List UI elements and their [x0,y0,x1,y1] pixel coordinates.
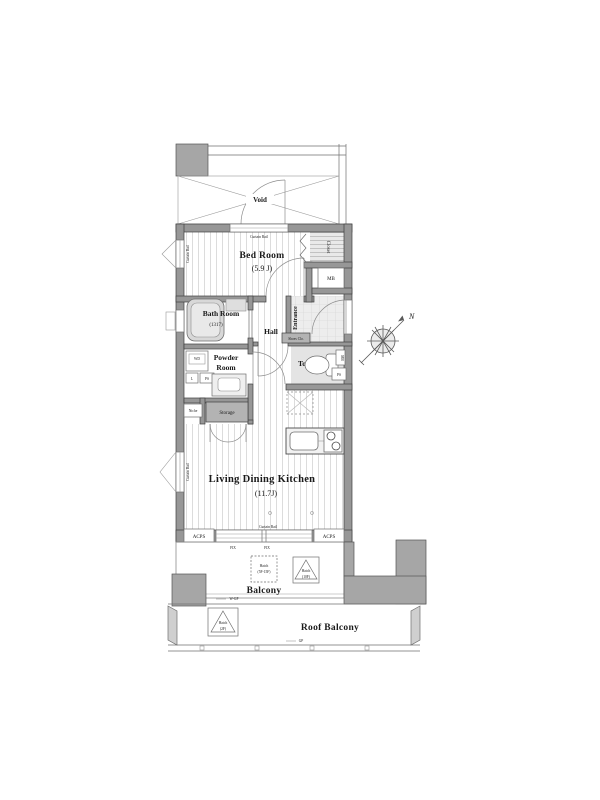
shoes-closet-label: Shoes Clo. [288,337,304,341]
roof-balcony-label: Roof Balcony [301,623,359,633]
hatch-label-3: Hatch [219,621,228,625]
void-label: Void [253,196,267,204]
roof-post-right [411,606,420,645]
roof-post-left [168,606,177,645]
acps-box-left: ACPS [193,535,206,540]
acps-box-right: ACPS [323,535,336,540]
roof-balcony: Hatch (2F) Roof Balcony GP [168,604,420,651]
laundry-label: L [191,377,193,381]
floorplan-page: Void Curtai [0,0,600,800]
casement-flap-bedroom [162,240,176,268]
room-bathroom: Bath Room (1317) [187,299,252,341]
hatch-label-2: Hatch [302,569,311,573]
balcony: Hatch (5F-15F) Hatch (10F) Balcony W-GP [172,540,426,606]
powder-label-1: Powder [214,353,239,362]
closet-label: Closet [325,241,330,254]
north-label: N [408,312,415,321]
kitchen-sink [290,432,318,450]
wgp-label: W-GP [230,597,239,601]
vanity-sink [218,378,240,391]
shaft-block [176,144,208,176]
hatch-sub-1: (5F-15F) [258,570,272,574]
mb-small-label: MB [340,355,344,361]
balcony-label: Balcony [247,586,282,596]
hatch-label-1: Hatch [260,564,269,568]
bathroom-label: Bath Room [203,309,240,318]
hatch-box-dashed [251,556,277,582]
bedroom-label: Bed Room [240,251,285,261]
storage-label: Storage [219,411,235,416]
bedroom-size: (5.9 J) [252,264,273,273]
balcony-left-block [172,574,206,606]
top-corridor-structure: Void [176,144,346,224]
curtain-rail-label-bedroom-top: Curtain Rail [250,235,268,239]
bedroom-floor [184,232,306,296]
hatch-sub-2: (10F) [302,575,311,579]
curtain-rail-label-bedroom-left: Curtain Rail [186,245,190,263]
casement-flap-ldk [160,452,176,492]
hatch-sub-3: (2F) [220,627,227,631]
niche-label: Niche [189,409,198,413]
gp-label: GP [299,639,304,643]
toilet-bowl [305,356,329,374]
curtain-rail-label-ldk-bottom: Curtain Rail [259,525,277,529]
ps-label-powder: PS [205,377,209,381]
hall-label: Hall [264,327,278,336]
entrance-label: Entrance [293,306,299,330]
wd-label: WD [194,357,200,361]
curtain-rail-label-ldk-left: Curtain Rail [186,463,190,481]
ldk-size: (11.7J) [255,489,277,498]
powder-label-2: Room [216,363,236,372]
mb-label: MB [327,277,335,282]
floorplan-drawing: Void Curtai [0,0,600,800]
fix-window-label-2: FIX [264,546,270,550]
ldk-label: Living Dining Kitchen [209,474,316,485]
ps-label-toilet: PS [337,373,341,377]
bathroom-size: (1317) [209,323,223,328]
fix-window-label-1: FIX [230,546,236,550]
compass-rose: N [359,312,415,365]
